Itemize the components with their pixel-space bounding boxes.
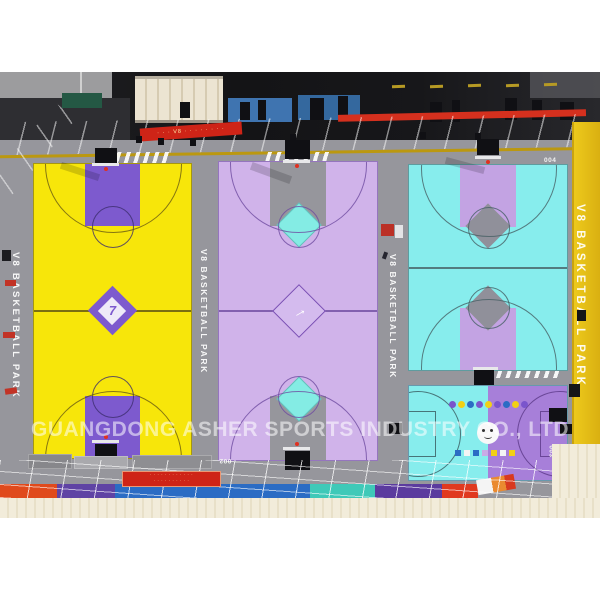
kids-square-row [455, 450, 515, 456]
roof-equipment [258, 100, 266, 120]
park-label-left: V8 BASKETBALL PARK [10, 252, 21, 399]
lane-dash [506, 84, 519, 87]
red-cart [381, 224, 394, 236]
lane-dash [468, 84, 481, 87]
basketball-hoop-pole [95, 148, 117, 163]
basketball-hoop-pole [474, 370, 494, 385]
lane-dash [430, 85, 443, 88]
red-bench [3, 332, 15, 338]
hoop-rim [295, 164, 299, 168]
three-point-arc [421, 164, 557, 237]
roof-equipment [240, 102, 250, 120]
canopy-fixture [158, 138, 164, 145]
fence-sign-line2: · · · · · · · · · · [123, 478, 220, 484]
three-point-arc [421, 299, 557, 371]
canopy-fixture [420, 132, 426, 139]
half-court-line [409, 267, 567, 269]
park-label-mid-1: V8 BASKETBALL PARK [199, 249, 209, 374]
dark-equipment [577, 310, 586, 321]
wall-bottom [0, 498, 600, 518]
three-point-arc [45, 163, 182, 233]
court-3 [408, 164, 568, 371]
roof-haze [530, 72, 600, 98]
lane-dash [544, 83, 557, 86]
fence-sign: · · · · · · · · · · · · · · · · · · · · … [122, 471, 221, 487]
backboard [475, 156, 501, 159]
three-point-arc [230, 161, 367, 233]
backboard [283, 160, 310, 163]
v8-logo-icon: 7 [95, 293, 130, 328]
watermark: GUANGDONG ASHER SPORTS INDUSTRY CO., LTD [0, 418, 600, 442]
court-number-004: 004 [544, 157, 556, 164]
canopy-fixture [136, 136, 142, 143]
court-1: 7 [33, 163, 192, 459]
court-2: → [218, 161, 378, 461]
wall-right [552, 444, 600, 500]
basketball-hoop-pole [477, 139, 499, 155]
green-sign [62, 93, 102, 108]
white-cart [395, 225, 403, 238]
hoop-rim [486, 160, 490, 164]
v8-arrow-icon: → [273, 285, 325, 337]
screenshot-root: { "photo": { "watermark": "GUANGDONG ASH… [0, 0, 600, 600]
dark-equipment [2, 250, 11, 261]
hoop-rim [295, 442, 299, 446]
hoop-rim [104, 167, 108, 171]
basketball-hoop-pole [285, 140, 310, 159]
backboard [283, 447, 310, 450]
aerial-photo: · · · V8 · · · · · · · · 7 → [0, 72, 600, 518]
park-label-mid-2: V8 BASKETBALL PARK [388, 254, 398, 379]
roof-equipment [310, 98, 324, 120]
kids-dot-row [449, 401, 528, 408]
canopy-fixture [190, 139, 196, 146]
storage-container-cream [135, 76, 223, 123]
perimeter-fence [0, 460, 588, 498]
backboard [92, 163, 119, 166]
lane-dash [392, 85, 405, 88]
dark-equipment [569, 384, 580, 397]
red-bench [5, 280, 16, 286]
roof-equipment [180, 102, 190, 118]
park-label-right: V8 BASKETBALL PARK [574, 204, 586, 388]
